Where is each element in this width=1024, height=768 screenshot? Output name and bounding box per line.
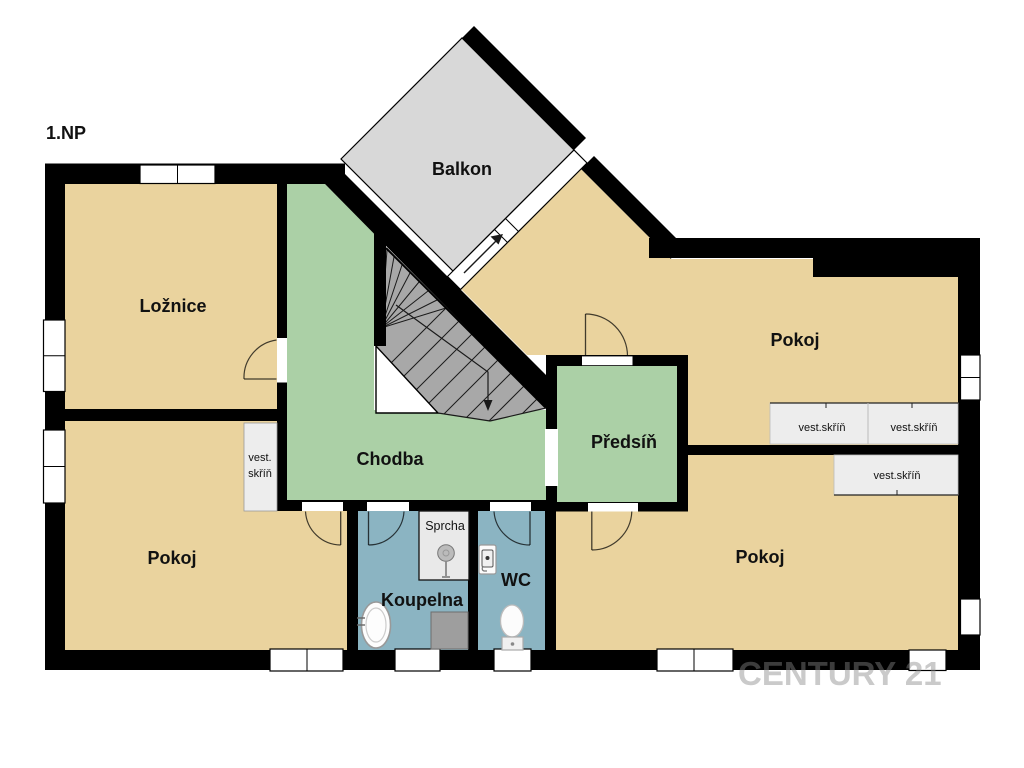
svg-text:Pokoj: Pokoj: [147, 548, 196, 568]
svg-text:CENTURY 21: CENTURY 21: [738, 655, 942, 692]
svg-text:Balkon: Balkon: [432, 159, 492, 179]
svg-text:Ložnice: Ložnice: [139, 296, 206, 316]
svg-text:Chodba: Chodba: [357, 449, 425, 469]
svg-text:vest.skříň: vest.skříň: [890, 422, 937, 434]
svg-text:vest.skříň: vest.skříň: [873, 470, 920, 482]
svg-text:1.NP: 1.NP: [46, 123, 86, 143]
svg-text:Pokoj: Pokoj: [770, 330, 819, 350]
svg-text:Pokoj: Pokoj: [735, 547, 784, 567]
svg-text:skříň: skříň: [248, 468, 272, 480]
svg-text:vest.: vest.: [248, 452, 271, 464]
svg-text:Koupelna: Koupelna: [381, 590, 464, 610]
svg-text:Sprcha: Sprcha: [425, 519, 465, 533]
svg-text:Předsíň: Předsíň: [591, 432, 657, 452]
svg-text:WC: WC: [501, 570, 531, 590]
svg-text:vest.skříň: vest.skříň: [798, 422, 845, 434]
